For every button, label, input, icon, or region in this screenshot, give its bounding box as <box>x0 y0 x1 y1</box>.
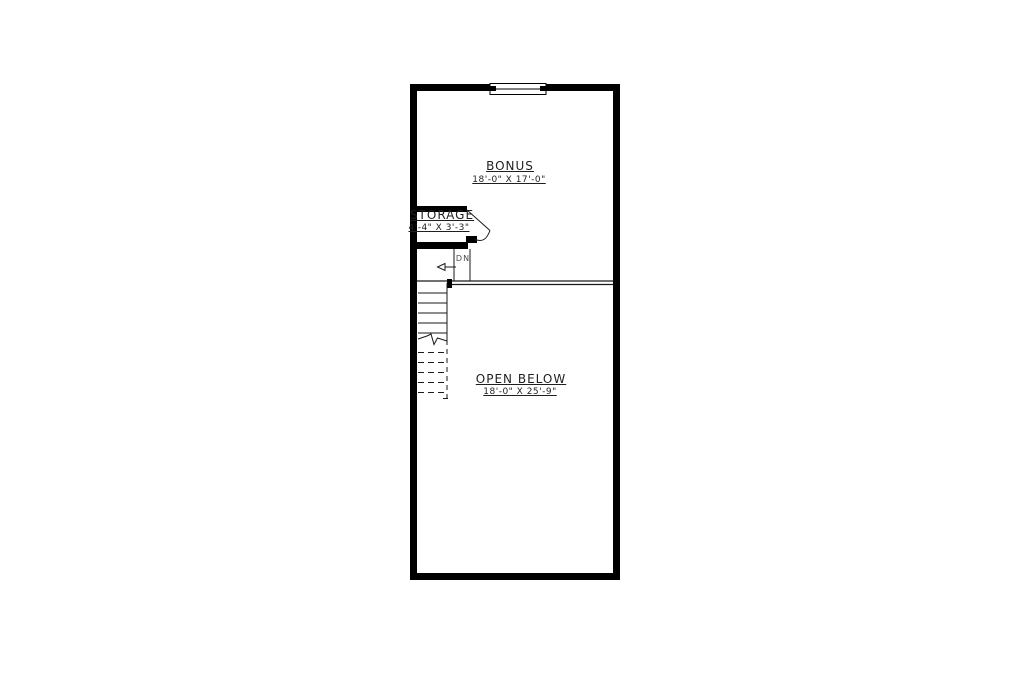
window-jamb-right <box>540 86 546 91</box>
railing-newel-post <box>447 279 452 288</box>
window-jamb-left <box>490 86 496 91</box>
floor-plan-canvas: BONUS 18'-0" X 17'-0" STORAGE 4'-4" X 3'… <box>0 0 1014 678</box>
open-below-dimensions: 18'-0" X 25'-9" <box>483 388 556 398</box>
dn-arrow-icon <box>438 264 457 271</box>
storage-room-dimensions: 4'-4" X 3'-3" <box>408 224 469 234</box>
railing-line <box>417 281 613 285</box>
bonus-room-label: BONUS <box>486 160 534 173</box>
wall-top-right <box>546 84 620 91</box>
storage-room-label: STORAGE <box>410 209 474 222</box>
wall-right <box>613 84 620 580</box>
wall-bottom <box>410 573 620 580</box>
door-arc <box>476 231 491 241</box>
storage-wall-bottom <box>412 242 468 249</box>
staircase <box>418 249 470 399</box>
break-line <box>418 334 447 345</box>
stair-treads-solid <box>418 293 447 333</box>
wall-left <box>410 84 417 580</box>
wall-top-left <box>410 84 490 91</box>
floor-plan-drawing <box>0 0 1014 678</box>
bonus-room-dimensions: 18'-0" X 17'-0" <box>472 176 545 186</box>
storage-wall-return <box>466 236 477 243</box>
stair-treads-dashed <box>418 353 448 399</box>
open-below-label: OPEN BELOW <box>476 373 566 386</box>
stairs-dn-label: DN <box>456 255 470 264</box>
window-symbol <box>490 84 546 95</box>
